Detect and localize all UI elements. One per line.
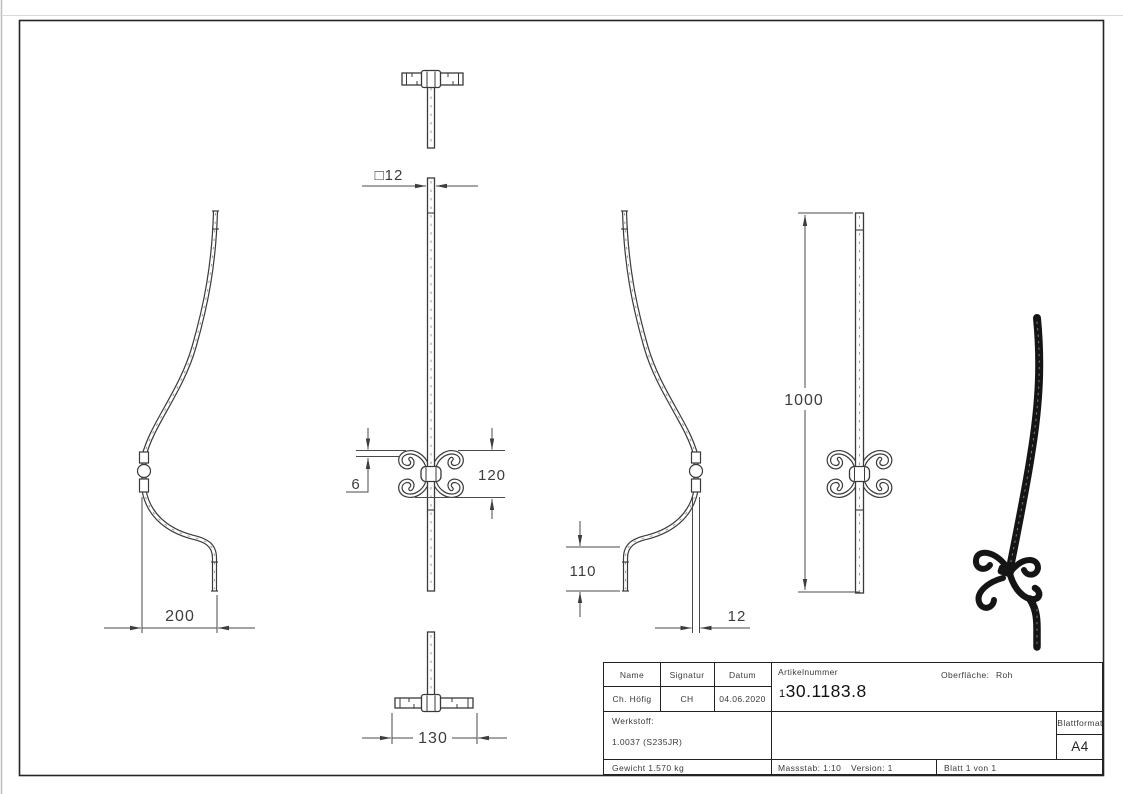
collar-front-view (421, 467, 441, 482)
tb-header-signatur: Signatur (660, 663, 714, 686)
side-view-right (621, 211, 703, 591)
tb-massstab: Massstab: 1:10 (778, 759, 853, 776)
dim-label-120: 120 (478, 467, 506, 484)
tb-value-datum: 04.06.2020 (714, 686, 771, 711)
tb-blatt: Blatt 1 von 1 (944, 759, 1054, 776)
drawing-sheet: 200 □12 6 (0, 0, 1123, 794)
tb-werkstoff-value: 1.0037 (S235JR) (612, 736, 762, 748)
bottom-view (395, 632, 473, 712)
title-block: Name Signatur Datum Ch. Höfig CH 04.06.2… (603, 662, 1103, 775)
tb-artikelnummer-rest: 30.1183.8 (786, 681, 867, 701)
tb-blattformat-label: Blattformat (1056, 711, 1104, 734)
collar-left-view (138, 452, 151, 492)
front-view (400, 178, 461, 591)
dim-label-square12: □12 (375, 167, 404, 184)
iso-view (976, 318, 1039, 647)
collar-right-view (690, 452, 703, 492)
tb-artikelnummer-value: 130.1183.8 (779, 681, 867, 702)
dim-label-12: 12 (728, 608, 747, 625)
collar-top-view (422, 71, 441, 88)
tb-oberflaeche-value: Roh (996, 669, 1036, 681)
dim-label-200: 200 (165, 608, 195, 625)
dim-label-1000: 1000 (784, 392, 824, 409)
tb-value-name: Ch. Höfig (604, 686, 660, 711)
tb-blattformat-value: A4 (1056, 734, 1104, 759)
dim-label-6: 6 (351, 476, 360, 493)
tb-header-name: Name (604, 663, 660, 686)
tb-artikelnummer-label: Artikelnummer (778, 666, 898, 678)
dim-label-130: 130 (418, 730, 448, 747)
top-view (402, 71, 463, 149)
side-view-left (138, 211, 220, 591)
tb-header-datum: Datum (714, 663, 771, 686)
dim-label-110: 110 (570, 563, 597, 580)
tb-artikelnummer-prefix: 1 (779, 688, 786, 700)
collar-back-view (850, 467, 870, 482)
collar-bottom-view (422, 695, 441, 712)
tb-werkstoff-label: Werkstoff: (612, 715, 762, 727)
back-view (829, 213, 890, 593)
tb-value-signatur: CH (660, 686, 714, 711)
tb-gewicht: Gewicht 1.570 kg (612, 759, 767, 776)
tb-version: Version: 1 (851, 759, 921, 776)
